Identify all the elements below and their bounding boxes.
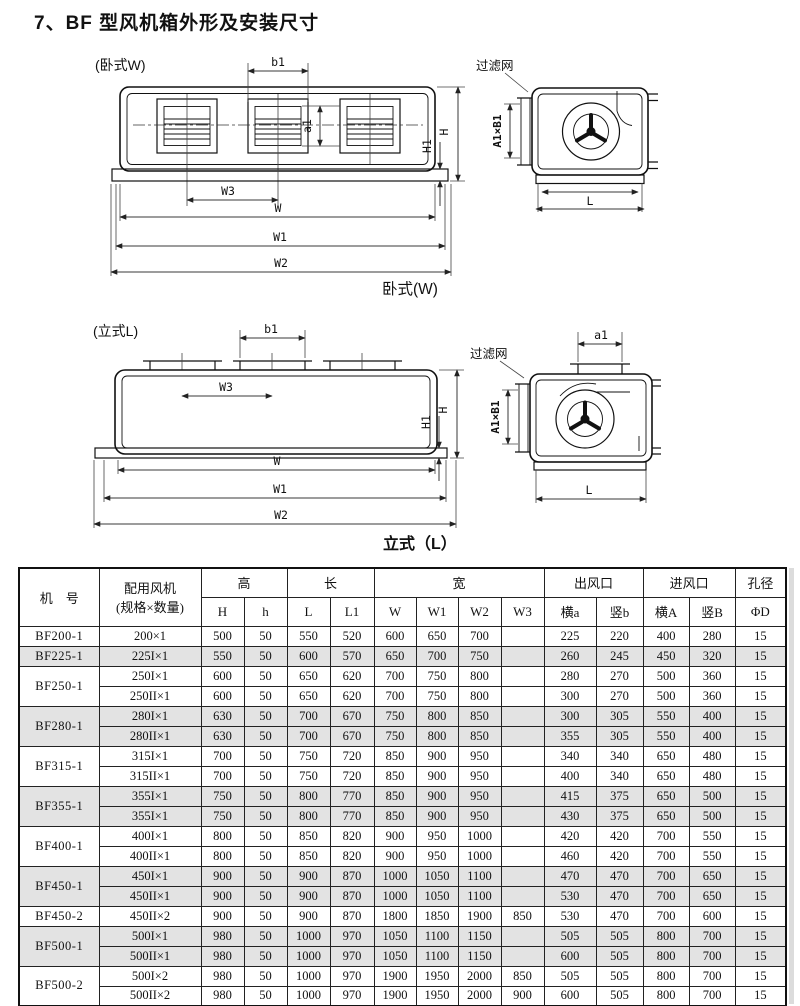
table-row: BF200-1200×15005055052060065070022522040… [19,626,786,646]
value-cell: 650 [287,686,330,706]
value-cell: 50 [244,706,287,726]
value-cell [501,706,544,726]
fan-spec-cell: 450I×1 [99,866,201,886]
dimension-W: W [120,184,435,221]
value-cell [501,846,544,866]
value-cell: 950 [458,806,501,826]
value-cell: 50 [244,726,287,746]
value-cell: 800 [643,926,689,946]
fan-spec-cell: 225I×1 [99,646,201,666]
value-cell: 700 [374,666,416,686]
table-row: 500II×2980501000970190019502000900600505… [19,986,786,1006]
value-cell: 550 [643,726,689,746]
value-cell: 340 [596,746,643,766]
value-cell: 500 [643,666,689,686]
table-row: BF450-2450II×290050900870180018501900850… [19,906,786,926]
value-cell: 750 [201,786,244,806]
table-row: 355I×17505080077085090095043037565050015 [19,806,786,826]
table-body: BF200-1200×15005055052060065070022522040… [19,626,786,1006]
value-cell: 550 [201,646,244,666]
table-row: BF355-1355I×1750508007708509009504153756… [19,786,786,806]
col-header-fan-line2: (规格×数量) [101,597,200,616]
fan-spec-cell: 500I×2 [99,966,201,986]
duct-stub [570,364,630,374]
leader-line [500,361,524,378]
value-cell: 260 [544,646,596,666]
value-cell: 620 [330,686,374,706]
value-cell: 50 [244,906,287,926]
fan-spec-cell: 315II×1 [99,766,201,786]
value-cell: 600 [201,666,244,686]
model-cell: BF355-1 [19,786,99,826]
value-cell: 800 [287,806,330,826]
value-cell: 850 [458,726,501,746]
table-row: BF400-1400I×1800508508209009501000420420… [19,826,786,846]
value-cell: 50 [244,926,287,946]
value-cell: 1100 [458,866,501,886]
value-cell: 600 [287,646,330,666]
fan-box-front-view [95,353,447,458]
value-cell: 50 [244,626,287,646]
value-cell: 700 [689,926,735,946]
col-header-fan: 配用风机(规格×数量) [99,568,201,626]
value-cell: 1000 [458,826,501,846]
dimension-W: W [118,454,435,474]
value-cell: 2000 [458,986,501,1006]
table-row: BF500-1500I×1980501000970105011001150505… [19,926,786,946]
value-cell: 900 [416,746,458,766]
value-cell: 505 [596,966,643,986]
dimension-L: L [536,194,644,209]
diagram-l-caption: 立式（L） [383,534,457,553]
value-cell: 1000 [287,966,330,986]
value-cell: 50 [244,746,287,766]
dim-b1-label: b1 [264,322,278,336]
value-cell: 700 [643,886,689,906]
value-cell: 15 [735,746,786,766]
value-cell: 225 [544,626,596,646]
value-cell [501,626,544,646]
value-cell: 1100 [416,946,458,966]
value-cell: 720 [330,746,374,766]
fan-spec-cell: 500I×1 [99,926,201,946]
fan-spec-cell: 250I×1 [99,666,201,686]
value-cell: 600 [201,686,244,706]
dim-W2-label: W2 [274,508,288,522]
value-cell: 750 [416,666,458,686]
outlet-flange [652,380,661,454]
model-cell: BF450-2 [19,906,99,926]
value-cell: 980 [201,966,244,986]
value-cell: 15 [735,646,786,666]
value-cell: 1850 [416,906,458,926]
fan-spec-cell: 400II×1 [99,846,201,866]
value-cell: 375 [596,806,643,826]
sub-header: W1 [416,597,458,626]
value-cell: 50 [244,826,287,846]
value-cell: 15 [735,866,786,886]
value-cell: 650 [287,666,330,686]
value-cell: 15 [735,946,786,966]
value-cell: 50 [244,946,287,966]
dim-H1-label: H1 [419,415,433,429]
sub-header: 竖B [689,597,735,626]
value-cell: 750 [201,806,244,826]
value-cell: 50 [244,986,287,1006]
value-cell: 1000 [374,886,416,906]
value-cell: 570 [330,646,374,666]
value-cell: 50 [244,686,287,706]
fan-spec-cell: 355I×1 [99,786,201,806]
value-cell: 600 [544,946,596,966]
filter-screen-label: 过滤网 [476,59,514,73]
value-cell: 950 [458,766,501,786]
group-header-height: 高 [201,568,287,597]
value-cell: 360 [689,666,735,686]
value-cell: 340 [544,746,596,766]
value-cell: 1000 [458,846,501,866]
dim-a1-label: a1 [594,328,608,342]
value-cell: 450 [643,646,689,666]
value-cell: 300 [544,706,596,726]
value-cell: 460 [544,846,596,866]
value-cell: 700 [416,646,458,666]
value-cell: 850 [287,846,330,866]
value-cell: 900 [374,826,416,846]
leader-line [505,73,528,92]
value-cell: 770 [330,786,374,806]
value-cell: 1100 [416,926,458,946]
value-cell: 800 [643,966,689,986]
value-cell: 870 [330,886,374,906]
dimension-H1: H1 [420,139,440,206]
dim-W3-label: W3 [219,380,233,394]
page-title: 7、BF 型风机箱外形及安装尺寸 [34,8,319,35]
sub-header: 横A [643,597,689,626]
value-cell: 1950 [416,986,458,1006]
dimension-H: H [436,370,464,458]
value-cell: 670 [330,726,374,746]
value-cell: 970 [330,926,374,946]
value-cell: 1000 [287,926,330,946]
value-cell: 700 [643,826,689,846]
value-cell: 800 [416,726,458,746]
value-cell: 520 [330,626,374,646]
value-cell: 970 [330,946,374,966]
value-cell: 750 [458,646,501,666]
fan-spec-cell: 280I×1 [99,706,201,726]
dim-H1-label: H1 [420,139,434,153]
dim-H-label: H [437,128,451,135]
dim-A1B1-label: A1×B1 [489,400,502,433]
value-cell: 500 [689,806,735,826]
value-cell [501,806,544,826]
value-cell: 700 [201,766,244,786]
dimension-b1: b1 [240,322,305,358]
dim-L-label: L [586,483,593,497]
value-cell: 280 [544,666,596,686]
dim-W-label: W [275,201,282,215]
value-cell [501,866,544,886]
side-base-plate [534,462,646,470]
value-cell [501,666,544,686]
value-cell: 1050 [416,866,458,886]
table-row: 500II×1980501000970105011001150600505800… [19,946,786,966]
value-cell: 850 [374,806,416,826]
value-cell: 400 [689,726,735,746]
value-cell: 650 [689,886,735,906]
dimension-a1: a1 [578,328,622,362]
table-row: BF315-1315I×1700507507208509009503403406… [19,746,786,766]
sub-header: W [374,597,416,626]
group-header-inlet: 进风口 [643,568,735,597]
group-header-length: 长 [287,568,374,597]
table-row: BF500-2500I×2980501000970190019502000850… [19,966,786,986]
value-cell: 870 [330,906,374,926]
value-cell: 600 [544,986,596,1006]
value-cell: 700 [287,726,330,746]
fan-spec-cell: 280II×1 [99,726,201,746]
fan-spec-cell: 450II×1 [99,886,201,906]
fan-spec-cell: 250II×1 [99,686,201,706]
dimension-A1xB1: A1×B1 [491,104,520,158]
col-header-model: 机 号 [19,568,99,626]
value-cell [501,946,544,966]
value-cell: 500 [689,786,735,806]
value-cell: 800 [416,706,458,726]
value-cell: 15 [735,706,786,726]
table-row: BF450-1450I×1900509008701000105011004704… [19,866,786,886]
dimension-table: 机 号 配用风机(规格×数量) 高 长 宽 出风口 进风口 孔径 H h L L… [18,567,787,1006]
sub-header: W2 [458,597,501,626]
dimension-H: H [437,87,465,181]
model-cell: BF315-1 [19,746,99,786]
value-cell: 50 [244,866,287,886]
value-cell: 15 [735,766,786,786]
value-cell: 950 [458,746,501,766]
vertical-type-diagram: (立式L) b1 W3 [0,318,800,563]
value-cell: 700 [643,866,689,886]
value-cell: 530 [544,886,596,906]
value-cell: 700 [201,746,244,766]
sub-header: ΦD [735,597,786,626]
sub-header: 横a [544,597,596,626]
table-row: 280II×1630507006707508008503553055504001… [19,726,786,746]
value-cell: 505 [596,986,643,1006]
dim-W2-label: W2 [274,256,288,270]
value-cell: 1050 [374,946,416,966]
value-cell: 900 [416,806,458,826]
value-cell: 15 [735,726,786,746]
value-cell: 850 [458,706,501,726]
value-cell: 480 [689,746,735,766]
value-cell: 470 [596,886,643,906]
value-cell: 375 [596,786,643,806]
value-cell: 430 [544,806,596,826]
fan-spec-cell: 450II×2 [99,906,201,926]
value-cell: 15 [735,986,786,1006]
value-cell: 1000 [287,986,330,1006]
value-cell: 305 [596,726,643,746]
sub-header: W3 [501,597,544,626]
value-cell: 1000 [287,946,330,966]
value-cell: 700 [643,906,689,926]
model-cell: BF450-1 [19,866,99,906]
fan-spec-cell: 355I×1 [99,806,201,826]
value-cell: 505 [544,966,596,986]
col-header-fan-line1: 配用风机 [101,578,200,597]
value-cell: 700 [458,626,501,646]
value-cell: 50 [244,846,287,866]
value-cell: 800 [458,666,501,686]
outlet-flange [648,94,658,169]
value-cell: 650 [643,806,689,826]
diagram-w-label: (卧式W) [95,57,146,73]
table-row: BF250-1250I×1600506506207007508002802705… [19,666,786,686]
filter-panel [515,384,530,452]
value-cell: 270 [596,686,643,706]
value-cell: 300 [544,686,596,706]
value-cell: 550 [689,826,735,846]
value-cell: 505 [544,926,596,946]
value-cell: 850 [374,746,416,766]
table-row: 400II×1800508508209009501000460420700550… [19,846,786,866]
value-cell: 700 [643,846,689,866]
side-base-plate [536,175,644,184]
diagram-w-caption: 卧式(W) [382,280,438,298]
value-cell: 360 [689,686,735,706]
value-cell: 870 [330,866,374,886]
dim-W3-label: W3 [221,184,235,198]
value-cell: 900 [416,786,458,806]
value-cell: 750 [287,746,330,766]
value-cell: 1900 [374,986,416,1006]
value-cell: 305 [596,706,643,726]
value-cell: 280 [689,626,735,646]
value-cell: 50 [244,666,287,686]
value-cell [501,726,544,746]
fan-box-side-view: 过滤网 L [476,59,658,212]
value-cell: 15 [735,826,786,846]
value-cell: 15 [735,626,786,646]
group-header-width: 宽 [374,568,544,597]
value-cell: 750 [287,766,330,786]
value-cell: 900 [287,906,330,926]
value-cell: 15 [735,806,786,826]
value-cell: 700 [287,706,330,726]
value-cell: 820 [330,826,374,846]
value-cell: 500 [201,626,244,646]
value-cell: 530 [544,906,596,926]
diagram-l-label: (立式L) [93,323,138,339]
value-cell: 600 [689,906,735,926]
fan-spec-cell: 315I×1 [99,746,201,766]
value-cell: 15 [735,686,786,706]
dim-W1-label: W1 [273,230,287,244]
value-cell: 900 [501,986,544,1006]
value-cell: 50 [244,786,287,806]
sub-header: 竖b [596,597,643,626]
value-cell: 980 [201,986,244,1006]
value-cell: 550 [287,626,330,646]
value-cell: 500 [643,686,689,706]
value-cell: 270 [596,666,643,686]
value-cell: 220 [596,626,643,646]
value-cell: 950 [416,846,458,866]
value-cell: 1900 [374,966,416,986]
value-cell: 50 [244,646,287,666]
value-cell: 470 [596,906,643,926]
value-cell [501,766,544,786]
value-cell: 245 [596,646,643,666]
value-cell: 750 [416,686,458,706]
fan-spec-cell: 200×1 [99,626,201,646]
table-row: 315II×1700507507208509009504003406504801… [19,766,786,786]
value-cell: 650 [643,786,689,806]
value-cell: 970 [330,966,374,986]
value-cell: 15 [735,666,786,686]
value-cell: 670 [330,706,374,726]
value-cell [501,926,544,946]
filter-panel [517,98,532,165]
document-page: 7、BF 型风机箱外形及安装尺寸 (卧式W) [0,0,800,1006]
value-cell: 750 [374,706,416,726]
dimension-A1xB1: A1×B1 [489,390,518,444]
sub-header: L [287,597,330,626]
value-cell: 970 [330,986,374,1006]
value-cell: 1800 [374,906,416,926]
value-cell: 320 [689,646,735,666]
value-cell: 50 [244,766,287,786]
value-cell: 650 [416,626,458,646]
value-cell: 700 [689,986,735,1006]
fan-box-front-view [112,87,448,206]
value-cell: 800 [201,826,244,846]
value-cell: 800 [458,686,501,706]
value-cell: 650 [643,746,689,766]
value-cell: 900 [201,906,244,926]
value-cell: 800 [643,946,689,966]
scan-edge-shadow [789,568,794,1004]
sub-header: L1 [330,597,374,626]
dim-H-label: H [436,406,450,413]
table-row: 250II×1600506506207007508003002705003601… [19,686,786,706]
filter-screen-label: 过滤网 [470,347,508,361]
value-cell: 420 [596,826,643,846]
value-cell: 850 [287,826,330,846]
value-cell: 700 [689,966,735,986]
value-cell: 800 [287,786,330,806]
table-row: BF280-1280I×1630507006707508008503003055… [19,706,786,726]
value-cell: 2000 [458,966,501,986]
value-cell: 800 [201,846,244,866]
value-cell: 400 [689,706,735,726]
horizontal-type-diagram: (卧式W) [0,54,800,304]
model-cell: BF500-1 [19,926,99,966]
value-cell: 340 [596,766,643,786]
value-cell [501,826,544,846]
value-cell: 620 [330,666,374,686]
dim-A1B1-label: A1×B1 [491,114,504,147]
group-header-outlet: 出风口 [544,568,643,597]
value-cell: 480 [689,766,735,786]
value-cell [501,786,544,806]
fan-spec-cell: 500II×1 [99,946,201,966]
value-cell: 900 [374,846,416,866]
value-cell: 600 [374,626,416,646]
value-cell [501,686,544,706]
value-cell: 15 [735,926,786,946]
